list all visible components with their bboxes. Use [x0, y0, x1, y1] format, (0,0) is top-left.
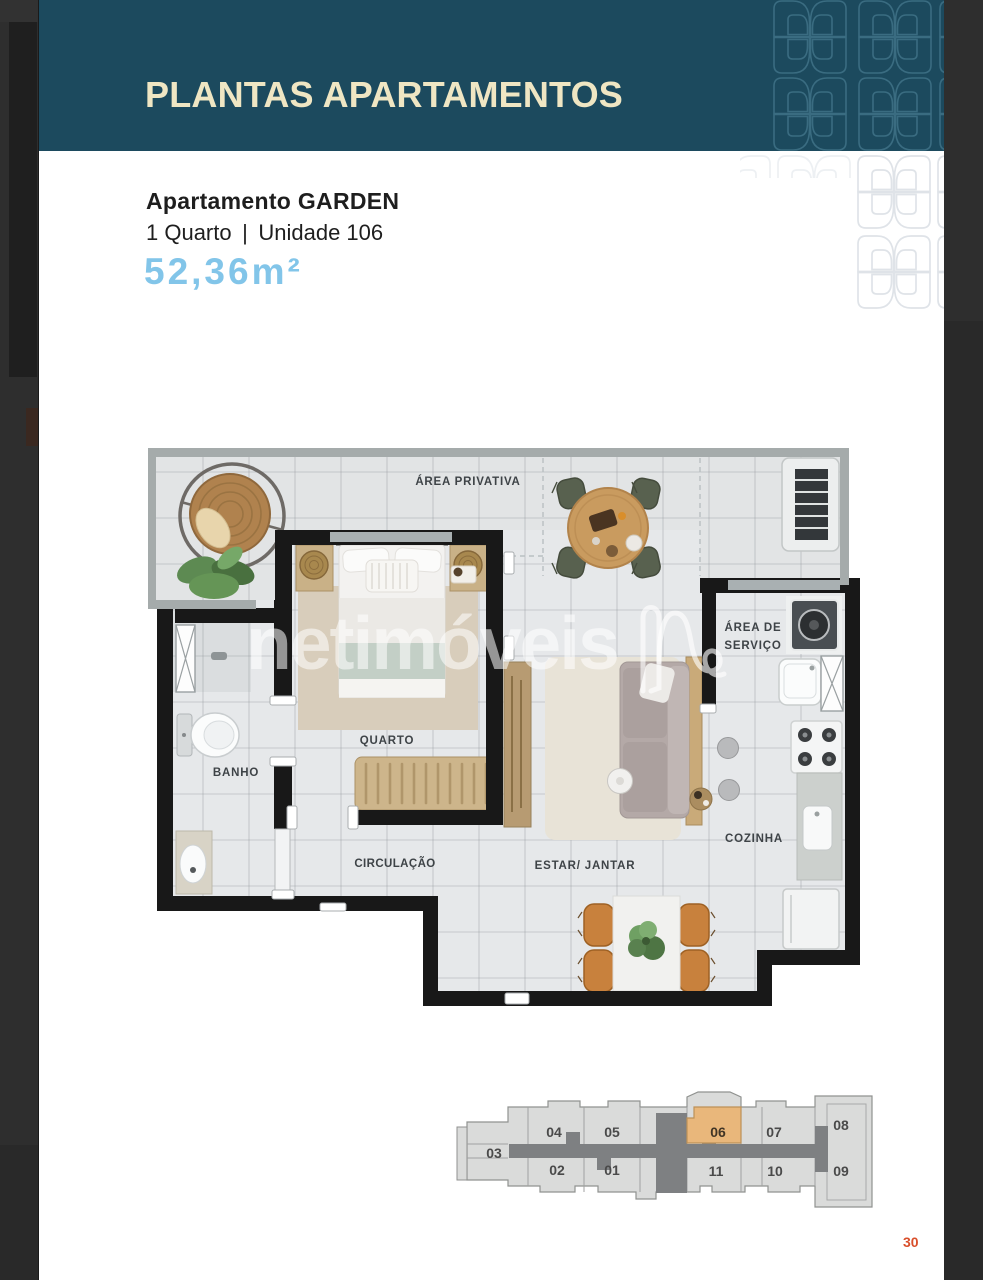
svg-text:06: 06	[710, 1124, 726, 1140]
svg-text:07: 07	[766, 1124, 782, 1140]
svg-text:08: 08	[833, 1117, 849, 1133]
svg-text:03: 03	[486, 1145, 502, 1161]
svg-text:02: 02	[549, 1162, 565, 1178]
svg-text:09: 09	[833, 1163, 849, 1179]
svg-text:04: 04	[546, 1124, 562, 1140]
svg-text:CIRCULAÇÃO: CIRCULAÇÃO	[354, 857, 435, 870]
svg-text:BANHO: BANHO	[213, 767, 259, 779]
svg-text:10: 10	[767, 1163, 783, 1179]
svg-text:ÁREA PRIVATIVA: ÁREA PRIVATIVA	[415, 475, 520, 488]
svg-text:01: 01	[604, 1162, 620, 1178]
svg-text:11: 11	[709, 1163, 724, 1179]
svg-text:COZINHA: COZINHA	[725, 833, 783, 845]
svg-text:QUARTO: QUARTO	[360, 735, 414, 747]
svg-text:05: 05	[604, 1124, 620, 1140]
svg-text:ESTAR/ JANTAR: ESTAR/ JANTAR	[535, 860, 636, 872]
svg-text:ÁREA DE: ÁREA DE	[725, 621, 782, 634]
svg-text:SERVIÇO: SERVIÇO	[724, 640, 781, 652]
